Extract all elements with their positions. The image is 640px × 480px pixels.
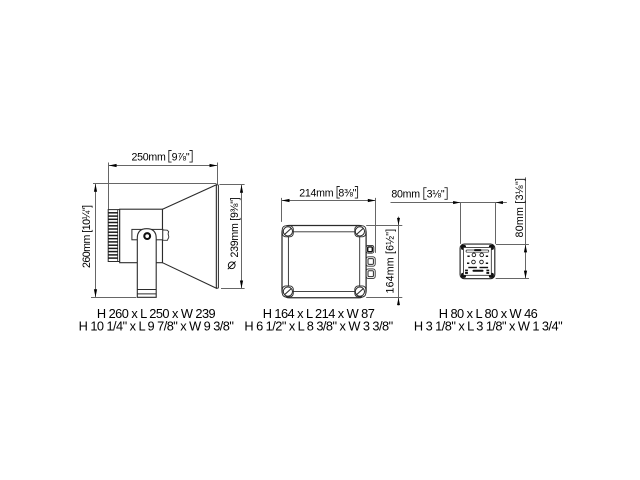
svg-text:80mm: 80mm [391,189,420,201]
svg-text:H 3 1/8" x L 3 1/8" x W 1 3/4": H 3 1/8" x L 3 1/8" x W 1 3/4" [414,318,562,333]
svg-text:260mm [10¼"]: 260mm [10¼"] [81,205,93,268]
svg-text:H 6 1/2" x L 8 3/8" x W 3 3/8": H 6 1/2" x L 8 3/8" x W 3 3/8" [244,318,392,333]
svg-text:214mm: 214mm [299,187,333,199]
svg-text:H 10 1/4" x L 9 7/8" x W 9 3/8: H 10 1/4" x L 9 7/8" x W 9 3/8" [79,318,234,333]
svg-text:239mm [9⅜"]: 239mm [9⅜"] [229,197,241,257]
svg-text:8⅜": 8⅜" [338,187,356,199]
svg-text:250mm: 250mm [131,151,165,163]
svg-text:80mm [3⅛"]: 80mm [3⅛"] [514,178,526,238]
svg-text:164mm [6½"]: 164mm [6½"] [385,229,397,294]
svg-text:3⅛": 3⅛" [427,189,445,201]
svg-text:9⅞": 9⅞" [172,151,190,163]
